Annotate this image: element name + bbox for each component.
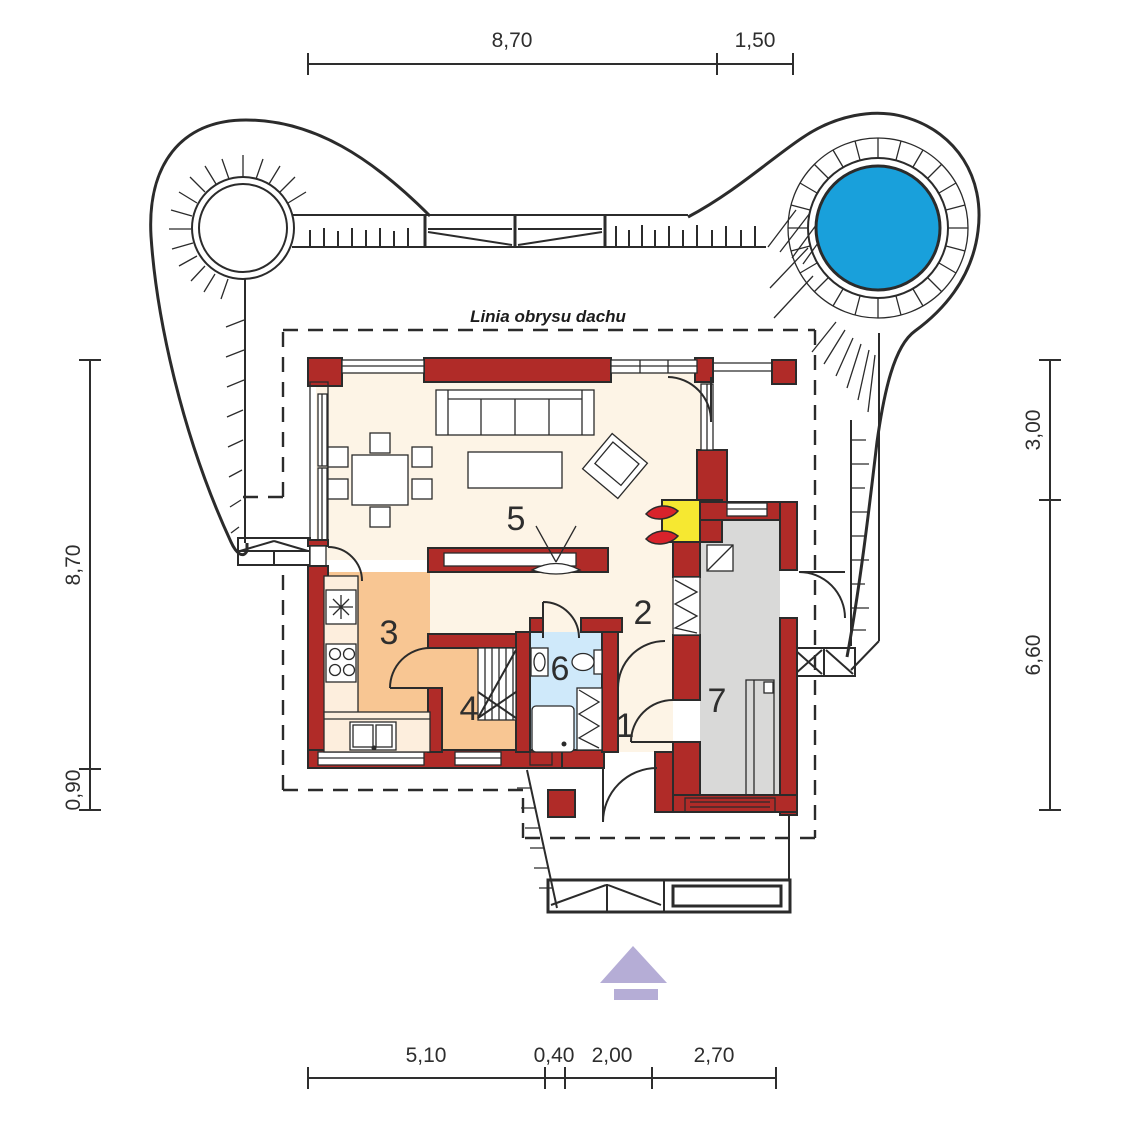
dim-label: 8,70 xyxy=(62,545,85,586)
dim-label: 8,70 xyxy=(492,29,533,52)
dim-label: 1,50 xyxy=(735,29,776,52)
room-label-3: 3 xyxy=(380,614,399,652)
stairs xyxy=(478,648,516,720)
side-door-opening xyxy=(310,546,326,566)
washbasin xyxy=(531,648,548,676)
pergola-lines xyxy=(713,363,772,371)
shower xyxy=(532,706,574,752)
room-label-4: 4 xyxy=(460,690,479,728)
terrace-post xyxy=(772,360,796,384)
dim-label: 2,00 xyxy=(592,1044,633,1067)
dimension-right: 3,00 6,60 xyxy=(1022,360,1061,810)
dim-label: 0,40 xyxy=(534,1044,575,1067)
room-label-1: 1 xyxy=(616,707,635,745)
garden-circle xyxy=(192,177,294,279)
dimension-top: 8,70 1,50 xyxy=(308,29,793,75)
side-walkway xyxy=(851,333,879,670)
room-label-7: 7 xyxy=(708,682,727,720)
driveway-band xyxy=(292,215,766,247)
sofa xyxy=(436,390,594,435)
room-label-6: 6 xyxy=(551,650,570,688)
dimension-left: 8,70 0,90 xyxy=(62,360,101,810)
entry-doormat xyxy=(673,886,781,906)
chair xyxy=(370,433,390,453)
driveway-gate xyxy=(425,215,605,247)
garage-side-steps xyxy=(793,648,855,676)
pool-hatch-bottom xyxy=(812,322,875,412)
chair xyxy=(412,479,432,499)
pool xyxy=(816,166,940,290)
front-door xyxy=(603,768,657,822)
roof-outline-label: Linia obrysu dachu xyxy=(470,307,626,326)
dim-label: 0,90 xyxy=(62,770,85,811)
floor-plan-page: Linia obrysu dachu xyxy=(0,0,1123,1123)
garden-hatch xyxy=(169,155,306,533)
garden-circle-inner xyxy=(199,184,287,272)
dim-label: 2,70 xyxy=(694,1044,735,1067)
dim-label: 3,00 xyxy=(1022,410,1045,451)
dimension-bottom: 5,10 0,40 2,00 2,70 xyxy=(308,1044,776,1089)
coffee-table xyxy=(468,452,562,488)
kitchen-sink xyxy=(350,722,396,751)
dim-label: 6,60 xyxy=(1022,635,1045,676)
wardrobe xyxy=(673,577,700,635)
chair xyxy=(370,507,390,527)
chair xyxy=(412,447,432,467)
chair xyxy=(328,479,348,499)
side-terrace-steps xyxy=(238,538,310,565)
floor-plan-drawing: Linia obrysu dachu xyxy=(0,0,1123,1123)
dim-label: 5,10 xyxy=(406,1044,447,1067)
entrance-arrow xyxy=(600,946,667,1000)
room-label-5: 5 xyxy=(507,500,526,538)
bathroom-niche xyxy=(577,688,602,750)
room-label-2: 2 xyxy=(634,594,653,632)
chair xyxy=(328,447,348,467)
porch-post xyxy=(548,790,575,817)
garage-side-door xyxy=(799,572,845,618)
